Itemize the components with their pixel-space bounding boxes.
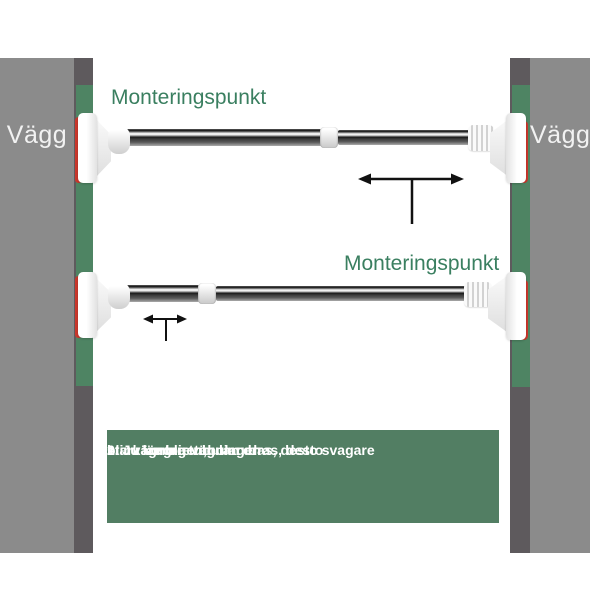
top-rod-right-wall-plate (506, 113, 526, 183)
top-rod-extension-arrow-icon (352, 170, 470, 230)
bottom-rod-tube-thick (126, 285, 200, 302)
bottom-rod-adjust-collar (198, 283, 216, 304)
instruction-line: starkare blir vägningen (107, 441, 261, 461)
top-rod-left-wall-plate (78, 113, 97, 183)
bottom-rod-left-joint (108, 282, 130, 309)
instruction-box: 1. Ju längre tubulan dras, desto svagare… (107, 430, 499, 523)
product-diagram: Vägg Vägg Monteringspunkt Monteringspunk… (0, 0, 600, 600)
top-rod-tube-thick (126, 129, 322, 146)
bottom-rod-left-wall-plate (78, 272, 97, 338)
bottom-rod-left-cone (95, 277, 111, 333)
top-rod-left-joint (108, 126, 130, 154)
bottom-rod-tube-thin (216, 286, 466, 301)
bottom-rod-right-wall-plate (506, 272, 526, 340)
bottom-rod-threaded-cap (464, 282, 492, 307)
bottom-rod-extension-arrow-icon (140, 312, 190, 344)
top-rod-adjust-collar (320, 127, 338, 148)
top-rod-tube-thin (338, 130, 470, 145)
